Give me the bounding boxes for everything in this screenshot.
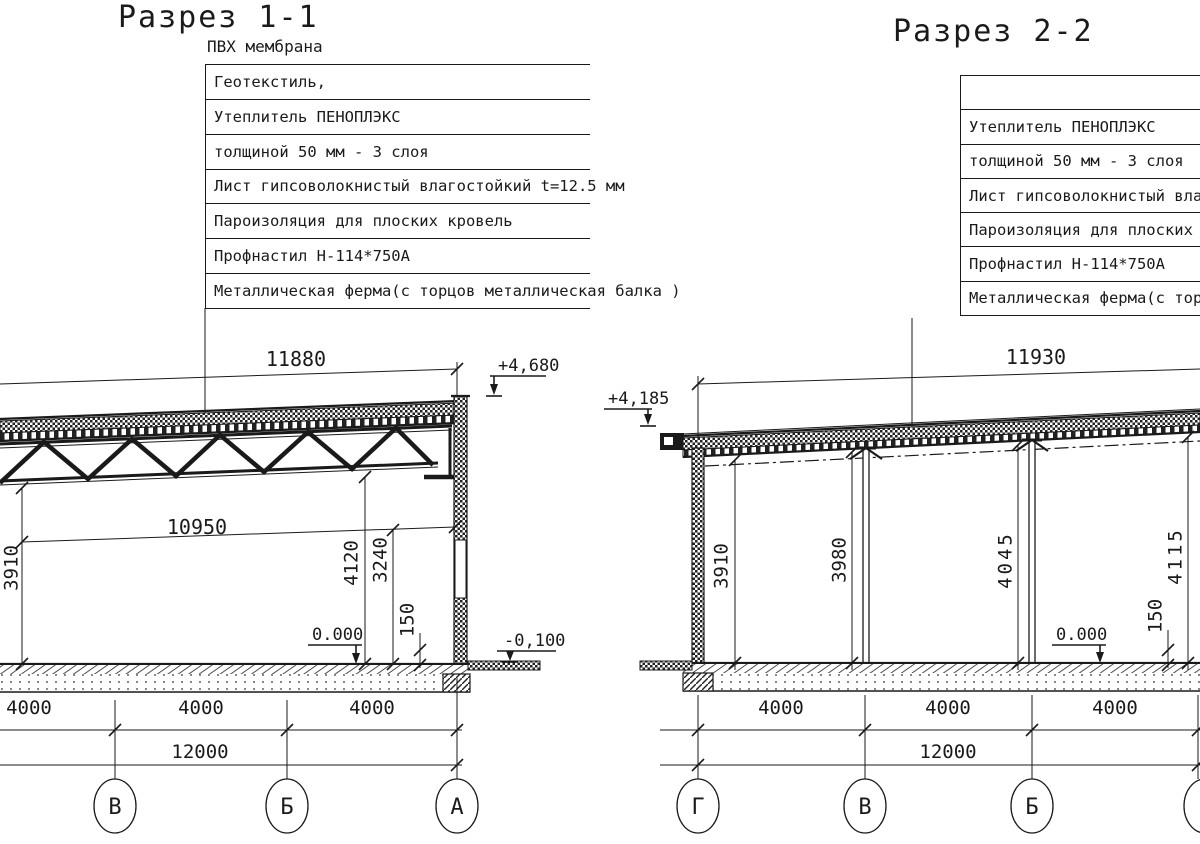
roof-layer-label-pvc: ПВХ мембрана <box>207 37 323 56</box>
dim-text-bay2-2: 4000 <box>925 697 971 719</box>
elev-mark-zero-2 <box>1052 645 1106 663</box>
floor-slab-2 <box>640 661 1200 691</box>
dim-text-bay1-2: 4000 <box>758 697 804 719</box>
material-table-1: Геотекстиль, Утеплитель ПЕНОПЛЭКС толщин… <box>205 64 590 309</box>
dim-clear-span <box>16 521 461 548</box>
elev-text-m0100: -0,100 <box>504 631 565 651</box>
material-row: Металлическая ферма(с торцов м <box>961 281 1200 315</box>
material-row: Лист гипсоволокнистый влагостой <box>961 178 1200 212</box>
dim-roof-span <box>0 362 463 396</box>
right-wall <box>451 396 470 678</box>
material-row: Утеплитель ПЕНОПЛЭКС <box>206 99 590 134</box>
left-wall-2 <box>692 448 704 663</box>
dim-text-11880: 11880 <box>266 347 326 371</box>
section-1-1: 11880 10950 +4,680 0.000 -0,100 3910 412… <box>0 308 565 833</box>
dim-text-bay3-2: 4000 <box>1092 697 1138 719</box>
dim-text-10950: 10950 <box>167 515 227 539</box>
dim-heights-2 <box>729 431 1194 671</box>
material-row: Пароизоляция для плоских кровель <box>206 203 590 238</box>
material-table-2: Утеплитель ПЕНОПЛЭКС толщиной 50 мм - 3 … <box>960 75 1200 316</box>
elev-text-4185: +4,185 <box>608 389 669 409</box>
dim-text-bay3: 4000 <box>349 697 395 719</box>
axis-letter-g: Г <box>691 795 704 820</box>
elev-mark-top-2 <box>604 409 656 426</box>
dim-text-4120: 4120 <box>341 540 363 586</box>
elev-text-0000-2: 0.000 <box>1056 625 1107 645</box>
dim-heights <box>16 471 426 671</box>
elev-mark-top <box>486 376 546 396</box>
dim-text-3240: 3240 <box>370 537 392 583</box>
material-row: Утеплитель ПЕНОПЛЭКС <box>961 109 1200 143</box>
dim-text-4045: 4045 <box>995 531 1017 589</box>
elev-mark-ground <box>497 651 556 662</box>
axis-letter-v-2: В <box>858 795 871 820</box>
dim-text-total: 12000 <box>171 741 228 763</box>
elev-text-4680: +4,680 <box>498 356 559 376</box>
dim-text-bay2: 4000 <box>178 697 224 719</box>
material-row: толщиной 50 мм - 3 слоя <box>206 134 590 169</box>
section-2-2: 11930 +4,185 0.000 3910 3980 4045 4115 1… <box>604 318 1200 833</box>
section-title-2-2: Разрез 2-2 <box>893 14 1094 49</box>
section-title-1-1: Разрез 1-1 <box>118 0 319 35</box>
roof-assembly-2 <box>660 409 1200 466</box>
material-row: Профнастил Н-114*750А <box>961 246 1200 280</box>
axis-letter-b: Б <box>280 795 293 820</box>
dim-text-3910-2: 3910 <box>711 543 733 589</box>
dim-text-3980: 3980 <box>829 537 851 583</box>
material-row: Геотекстиль, <box>206 64 590 99</box>
floor-slab <box>0 661 540 692</box>
material-row <box>961 75 1200 109</box>
bottom-dims <box>0 678 463 779</box>
dim-text-total-2: 12000 <box>919 741 976 763</box>
material-row: Лист гипсоволокнистый влагостойкий t=12.… <box>206 169 590 204</box>
axis-letter-b-2: Б <box>1025 795 1038 820</box>
dim-text-4115: 4115 <box>1165 527 1187 585</box>
elev-text-0000: 0.000 <box>312 625 363 645</box>
axis-letter-a: А <box>450 795 463 820</box>
dim-text-150: 150 <box>397 603 419 637</box>
dim-text-150-2: 150 <box>1145 599 1167 633</box>
axis-letter-v: В <box>108 795 121 820</box>
elev-mark-zero <box>308 645 362 664</box>
material-row: Пароизоляция для плоских кровел <box>961 212 1200 246</box>
dim-text-3910: 3910 <box>1 545 23 591</box>
material-row: толщиной 50 мм - 3 слоя <box>961 144 1200 178</box>
dim-text-bay1: 4000 <box>6 697 52 719</box>
section-drawing-sheet: 11880 10950 +4,680 0.000 -0,100 3910 412… <box>0 0 1200 844</box>
dim-text-11930: 11930 <box>1006 345 1066 369</box>
material-row: Металлическая ферма(с торцов металлическ… <box>206 273 590 308</box>
material-row: Профнастил Н-114*750А <box>206 238 590 273</box>
axis-bubbles-2 <box>677 779 1200 833</box>
